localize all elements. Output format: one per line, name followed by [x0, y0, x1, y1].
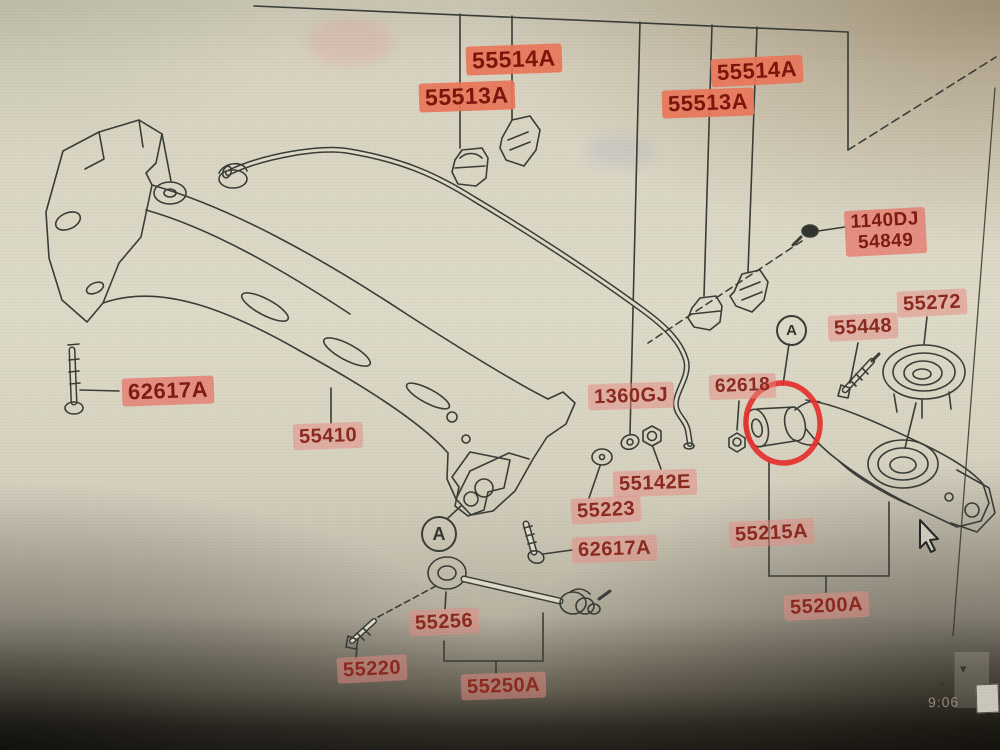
part-label-62617a-left[interactable]: 62617A: [122, 375, 215, 406]
part-label-55223[interactable]: 55223: [570, 495, 641, 525]
part-label-1140dj-54849[interactable]: 1140DJ 54849: [844, 207, 927, 257]
part-label-62617a-center[interactable]: 62617A: [572, 535, 658, 564]
nut-55142e-drawing: [643, 426, 661, 469]
part-label-55256[interactable]: 55256: [408, 607, 479, 637]
part-label-55220[interactable]: 55220: [336, 654, 407, 684]
part-label-1360gj[interactable]: 1360GJ: [588, 382, 675, 411]
trailing-rod-drawing: [428, 557, 610, 614]
washer-55223-drawing: [589, 449, 612, 498]
part-label-54849[interactable]: 54849: [851, 230, 921, 254]
bolt-62617a-left-drawing: [65, 344, 119, 414]
mouse-cursor: [920, 520, 938, 552]
nut-62618-drawing: [729, 401, 745, 452]
part-label-55142e[interactable]: 55142E: [613, 469, 698, 498]
stabilizer-bushing-right: [688, 296, 722, 330]
part-label-55514a-right[interactable]: 55514A: [710, 55, 803, 88]
sheet-edge-line: [953, 88, 995, 636]
bolt-62617a-center-drawing: [524, 524, 572, 565]
marker-a-left: A: [421, 516, 457, 552]
part-label-55448[interactable]: 55448: [827, 312, 898, 342]
stabilizer-bracket-left: [500, 116, 540, 166]
part-label-55272[interactable]: 55272: [896, 288, 967, 318]
taskbar-button[interactable]: [976, 684, 1000, 714]
part-label-55215a[interactable]: 55215A: [728, 518, 814, 548]
bolt-55448-drawing: [838, 343, 879, 398]
part-label-55513a-right[interactable]: 55513A: [662, 87, 755, 118]
part-label-55200a[interactable]: 55200A: [783, 591, 869, 621]
part-label-55513a-left[interactable]: 55513A: [419, 80, 516, 113]
lower-arm-drawing: [742, 400, 995, 532]
part-label-55514a-left[interactable]: 55514A: [466, 43, 563, 76]
bolt-1140dj-drawing: [648, 225, 845, 343]
washer-1360gj-drawing: [619, 432, 641, 451]
part-label-55250a[interactable]: 55250A: [461, 672, 547, 701]
part-label-62618[interactable]: 62618: [709, 373, 777, 400]
crossmember-drawing: [46, 120, 575, 515]
parts-diagram-drawing: [0, 0, 1000, 750]
clock-time: 9:06: [928, 694, 960, 711]
scroll-down-icon[interactable]: ▾: [960, 662, 967, 675]
screen-photo: 55514A 55513A 55514A 55513A 1140DJ 54849…: [0, 0, 1000, 750]
marker-a-right: A: [776, 315, 807, 346]
scroll-right-icon[interactable]: ▸: [941, 679, 947, 690]
part-label-55410[interactable]: 55410: [293, 422, 364, 450]
stabilizer-bushing-left: [452, 148, 488, 186]
